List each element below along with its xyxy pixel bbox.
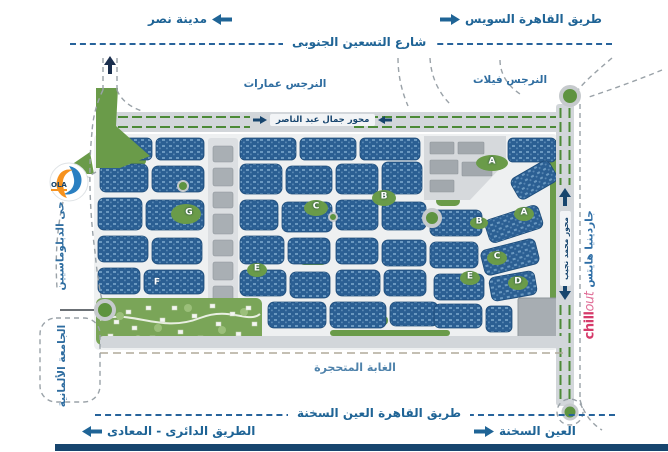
naguib-axis-assembly: محور محمد نجيب xyxy=(553,205,577,291)
narges-villas-label: النرجس فيلات xyxy=(450,74,570,86)
left-arrow-icon xyxy=(378,115,392,125)
nasser-axis-label: محور جمال عبد الناصر xyxy=(270,114,375,126)
diplomats-district-assembly: حى الدبلوماسيين xyxy=(48,198,74,294)
narges-buildings-label: النرجس عمارات xyxy=(225,78,345,90)
north-road-arrow-icon xyxy=(104,56,116,74)
left-arrow-icon xyxy=(82,425,102,438)
nasr-city-label: مدينة نصر xyxy=(148,12,207,26)
gardenia-heights-label: جاردينيا هايتس xyxy=(584,210,596,287)
gardenia-heights-assembly: جاردينيا هايتس xyxy=(578,202,602,296)
ola-logo-text: OLA xyxy=(51,182,67,191)
diplomats-district-label: حى الدبلوماسيين xyxy=(55,201,67,290)
suez-road-label: طريق القاهرة السويس xyxy=(465,12,602,26)
chillout-logo-bold: chill xyxy=(583,311,598,339)
right-arrow-icon xyxy=(474,425,494,438)
petrified-forest-label: الغابة المتحجرة xyxy=(295,361,415,374)
chillout-logo: chillout xyxy=(574,284,602,346)
right-arrow-icon xyxy=(440,13,460,26)
nasser-axis-assembly: محور جمال عبد الناصر xyxy=(253,114,392,126)
chillout-logo-light: out xyxy=(583,291,598,311)
ring-road-label: الطريق الدائرى - المعادى xyxy=(107,424,255,438)
bottom-divider-bar xyxy=(55,444,668,451)
german-university-label: الجامعة الألمانية xyxy=(56,325,68,407)
suez-road-direction: طريق القاهرة السويس xyxy=(440,12,602,26)
right-arrow-icon xyxy=(253,115,267,125)
left-arrow-icon xyxy=(212,13,232,26)
ola-logo: OLA xyxy=(49,162,89,202)
nasr-city-direction: مدينة نصر xyxy=(148,12,232,26)
masterplan-map: مدينة نصر طريق القاهرة السويس شارع التسع… xyxy=(0,0,668,452)
ain-sokhna-direction: العين السخنة xyxy=(474,424,576,438)
ain-sokhna-label: العين السخنة xyxy=(499,424,576,438)
ring-road-direction: الطريق الدائرى - المعادى xyxy=(82,424,255,438)
sokhna-road-label: طريق القاهرة العين السخنة xyxy=(288,406,470,420)
naguib-axis-label: محور محمد نجيب xyxy=(560,211,571,286)
teseen-street-label: شارع التسعين الجنوبى xyxy=(283,35,435,49)
german-university-assembly: الجامعة الألمانية xyxy=(48,320,76,412)
